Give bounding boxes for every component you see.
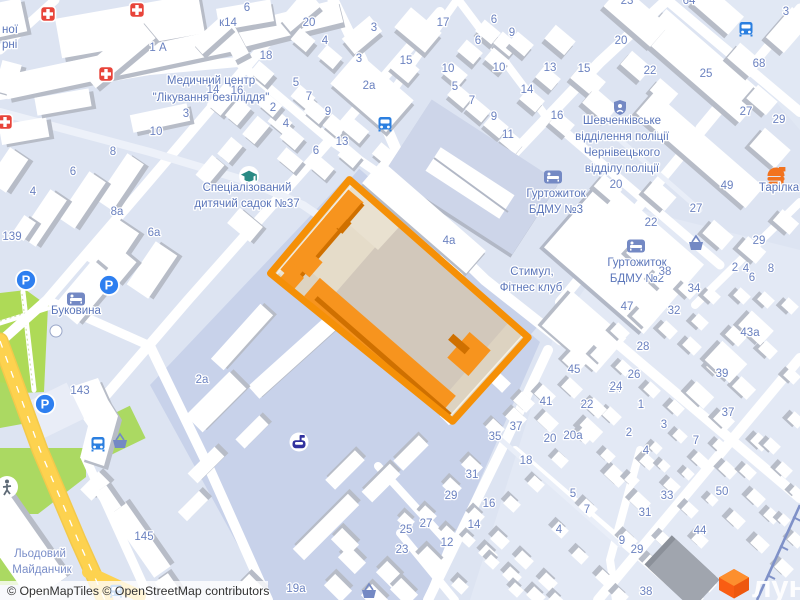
svg-text:Стимул,: Стимул, <box>510 266 553 278</box>
svg-text:24: 24 <box>610 381 623 393</box>
svg-text:6: 6 <box>244 2 250 14</box>
svg-text:26: 26 <box>628 369 641 381</box>
svg-text:34: 34 <box>688 283 701 295</box>
svg-text:16: 16 <box>231 85 244 97</box>
svg-text:2: 2 <box>270 102 276 114</box>
svg-text:18: 18 <box>520 455 533 467</box>
svg-text:3: 3 <box>183 108 189 120</box>
svg-text:4а: 4а <box>443 235 456 247</box>
svg-text:рні: рні <box>2 39 17 51</box>
svg-text:29: 29 <box>753 235 766 247</box>
svg-text:4: 4 <box>322 35 329 47</box>
svg-text:БДМУ №3: БДМУ №3 <box>529 204 583 216</box>
svg-text:Льодовий: Льодовий <box>14 548 66 560</box>
svg-text:9: 9 <box>325 106 331 118</box>
svg-text:7: 7 <box>584 504 590 516</box>
svg-text:20а: 20а <box>563 430 583 442</box>
svg-text:3: 3 <box>356 53 362 65</box>
svg-text:39: 39 <box>716 368 729 380</box>
svg-text:11: 11 <box>502 129 514 141</box>
svg-text:відділення поліції: відділення поліції <box>575 131 670 143</box>
svg-text:6: 6 <box>70 166 76 178</box>
svg-text:22: 22 <box>645 217 658 229</box>
svg-text:2а: 2а <box>363 80 376 92</box>
svg-text:9: 9 <box>509 27 515 39</box>
svg-text:25: 25 <box>400 524 413 536</box>
svg-text:P: P <box>41 397 50 412</box>
svg-text:Чернівецького: Чернівецького <box>584 147 660 159</box>
svg-text:27: 27 <box>740 106 753 118</box>
svg-text:5: 5 <box>452 81 458 93</box>
svg-text:Тарілка: Тарілка <box>759 182 800 194</box>
svg-text:29: 29 <box>631 544 644 556</box>
svg-text:15: 15 <box>578 63 591 75</box>
svg-text:2: 2 <box>732 262 738 274</box>
svg-text:20: 20 <box>615 35 628 47</box>
svg-text:23: 23 <box>621 0 634 7</box>
svg-text:Спеціалізований: Спеціалізований <box>203 182 292 194</box>
svg-text:ної: ної <box>2 24 19 36</box>
svg-text:64: 64 <box>683 0 696 7</box>
svg-text:2а: 2а <box>196 374 209 386</box>
svg-text:P: P <box>22 273 31 288</box>
svg-text:139: 139 <box>2 231 21 243</box>
svg-text:Гуртожиток: Гуртожиток <box>526 188 586 200</box>
svg-text:8: 8 <box>110 146 116 158</box>
svg-text:43а: 43а <box>740 327 760 339</box>
svg-text:відділу поліції: відділу поліції <box>585 163 660 175</box>
svg-text:10: 10 <box>442 63 455 75</box>
svg-text:9: 9 <box>619 535 625 547</box>
svg-text:17: 17 <box>437 17 450 29</box>
svg-text:143: 143 <box>70 385 89 397</box>
svg-text:3: 3 <box>371 22 377 34</box>
svg-text:37: 37 <box>510 421 523 433</box>
svg-text:28: 28 <box>637 341 650 353</box>
svg-text:13: 13 <box>544 62 557 74</box>
svg-text:6а: 6а <box>148 227 161 239</box>
svg-text:Фітнес клуб: Фітнес клуб <box>500 282 563 294</box>
svg-text:31: 31 <box>639 507 652 519</box>
svg-text:45: 45 <box>568 364 581 376</box>
svg-text:1 А: 1 А <box>149 42 167 54</box>
svg-text:10: 10 <box>493 62 506 74</box>
svg-text:дитячий садок №37: дитячий садок №37 <box>194 198 299 210</box>
svg-text:3: 3 <box>783 6 789 18</box>
svg-text:13: 13 <box>336 136 349 148</box>
svg-text:4: 4 <box>283 118 290 130</box>
svg-text:47: 47 <box>621 301 634 313</box>
svg-text:35: 35 <box>489 431 502 443</box>
svg-text:16: 16 <box>551 110 564 122</box>
svg-text:22: 22 <box>581 399 594 411</box>
svg-text:7: 7 <box>469 95 475 107</box>
svg-text:1: 1 <box>638 399 644 411</box>
svg-text:Майданчик: Майданчик <box>12 564 72 576</box>
svg-text:68: 68 <box>753 58 766 70</box>
svg-text:33: 33 <box>661 490 674 502</box>
svg-text:23: 23 <box>396 544 409 556</box>
svg-text:145: 145 <box>134 531 153 543</box>
svg-text:12: 12 <box>441 537 454 549</box>
svg-text:Буковина: Буковина <box>51 305 101 317</box>
svg-text:18: 18 <box>260 50 273 62</box>
svg-text:14: 14 <box>207 84 220 96</box>
svg-text:8: 8 <box>768 263 774 275</box>
svg-text:7: 7 <box>693 435 699 447</box>
svg-text:© OpenMapTiles © OpenStreetMap: © OpenMapTiles © OpenStreetMap contribut… <box>7 584 269 598</box>
svg-text:20: 20 <box>303 17 316 29</box>
svg-text:5: 5 <box>570 488 576 500</box>
svg-text:5: 5 <box>293 77 299 89</box>
svg-text:4: 4 <box>643 445 650 457</box>
svg-text:38: 38 <box>659 266 672 278</box>
svg-text:9: 9 <box>491 111 497 123</box>
svg-text:7: 7 <box>306 91 312 103</box>
svg-text:4: 4 <box>556 524 563 536</box>
svg-text:27: 27 <box>420 518 433 530</box>
svg-text:16: 16 <box>483 498 496 510</box>
svg-text:6: 6 <box>491 14 497 26</box>
svg-text:Шевченківське: Шевченківське <box>583 115 661 127</box>
svg-text:20: 20 <box>610 179 623 191</box>
svg-text:20: 20 <box>544 433 557 445</box>
svg-text:19а: 19а <box>286 583 306 595</box>
svg-text:22: 22 <box>644 65 657 77</box>
svg-text:4: 4 <box>30 186 37 198</box>
svg-text:32: 32 <box>668 305 681 317</box>
svg-text:6: 6 <box>475 35 481 47</box>
svg-text:3: 3 <box>661 419 667 431</box>
svg-text:P: P <box>105 278 114 293</box>
svg-text:15: 15 <box>400 55 413 67</box>
svg-text:37: 37 <box>722 407 735 419</box>
svg-text:38: 38 <box>640 586 653 598</box>
svg-text:14: 14 <box>521 84 534 96</box>
svg-text:29: 29 <box>445 490 458 502</box>
svg-text:6: 6 <box>749 272 755 284</box>
svg-text:44: 44 <box>694 525 707 537</box>
svg-text:лун: лун <box>752 569 800 600</box>
svg-text:к14: к14 <box>219 17 237 29</box>
svg-text:6: 6 <box>313 145 319 157</box>
svg-text:8а: 8а <box>111 206 124 218</box>
svg-text:31: 31 <box>466 469 479 481</box>
svg-text:25: 25 <box>700 68 713 80</box>
svg-text:2: 2 <box>626 427 632 439</box>
svg-text:БДМУ №2: БДМУ №2 <box>610 273 664 285</box>
svg-text:41: 41 <box>540 396 553 408</box>
svg-text:50: 50 <box>716 486 729 498</box>
svg-text:10: 10 <box>150 126 163 138</box>
svg-text:29: 29 <box>773 114 786 126</box>
svg-text:14: 14 <box>468 519 481 531</box>
svg-text:27: 27 <box>690 203 703 215</box>
svg-text:49: 49 <box>721 180 734 192</box>
